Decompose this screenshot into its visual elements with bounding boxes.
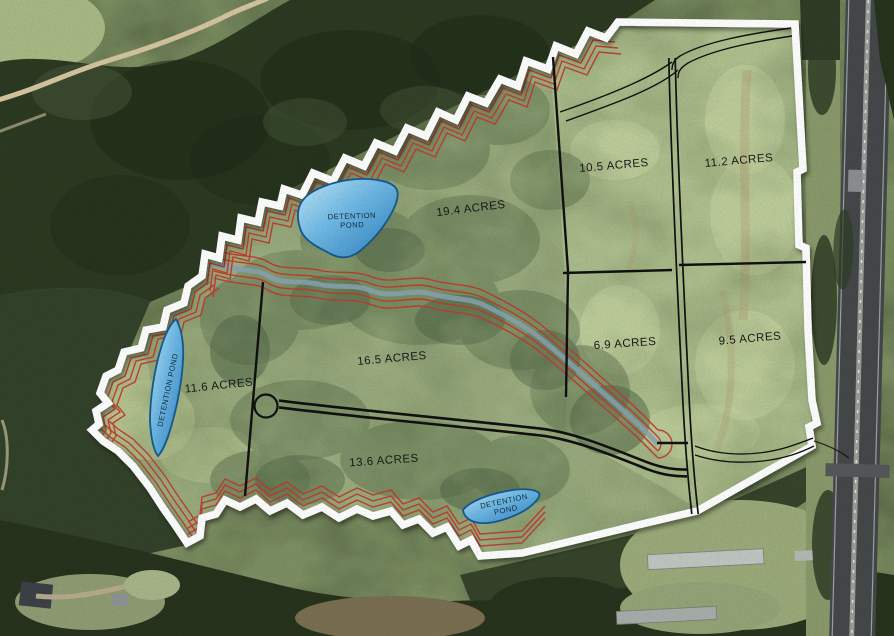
pond-label-top: DETENTION POND xyxy=(327,211,376,232)
site-plan-map: 19.4 ACRES 10.5 ACRES 11.2 ACRES 6.9 ACR… xyxy=(0,0,894,636)
aerial-site-plan-canvas xyxy=(0,0,894,636)
grain-overlay xyxy=(0,0,894,636)
